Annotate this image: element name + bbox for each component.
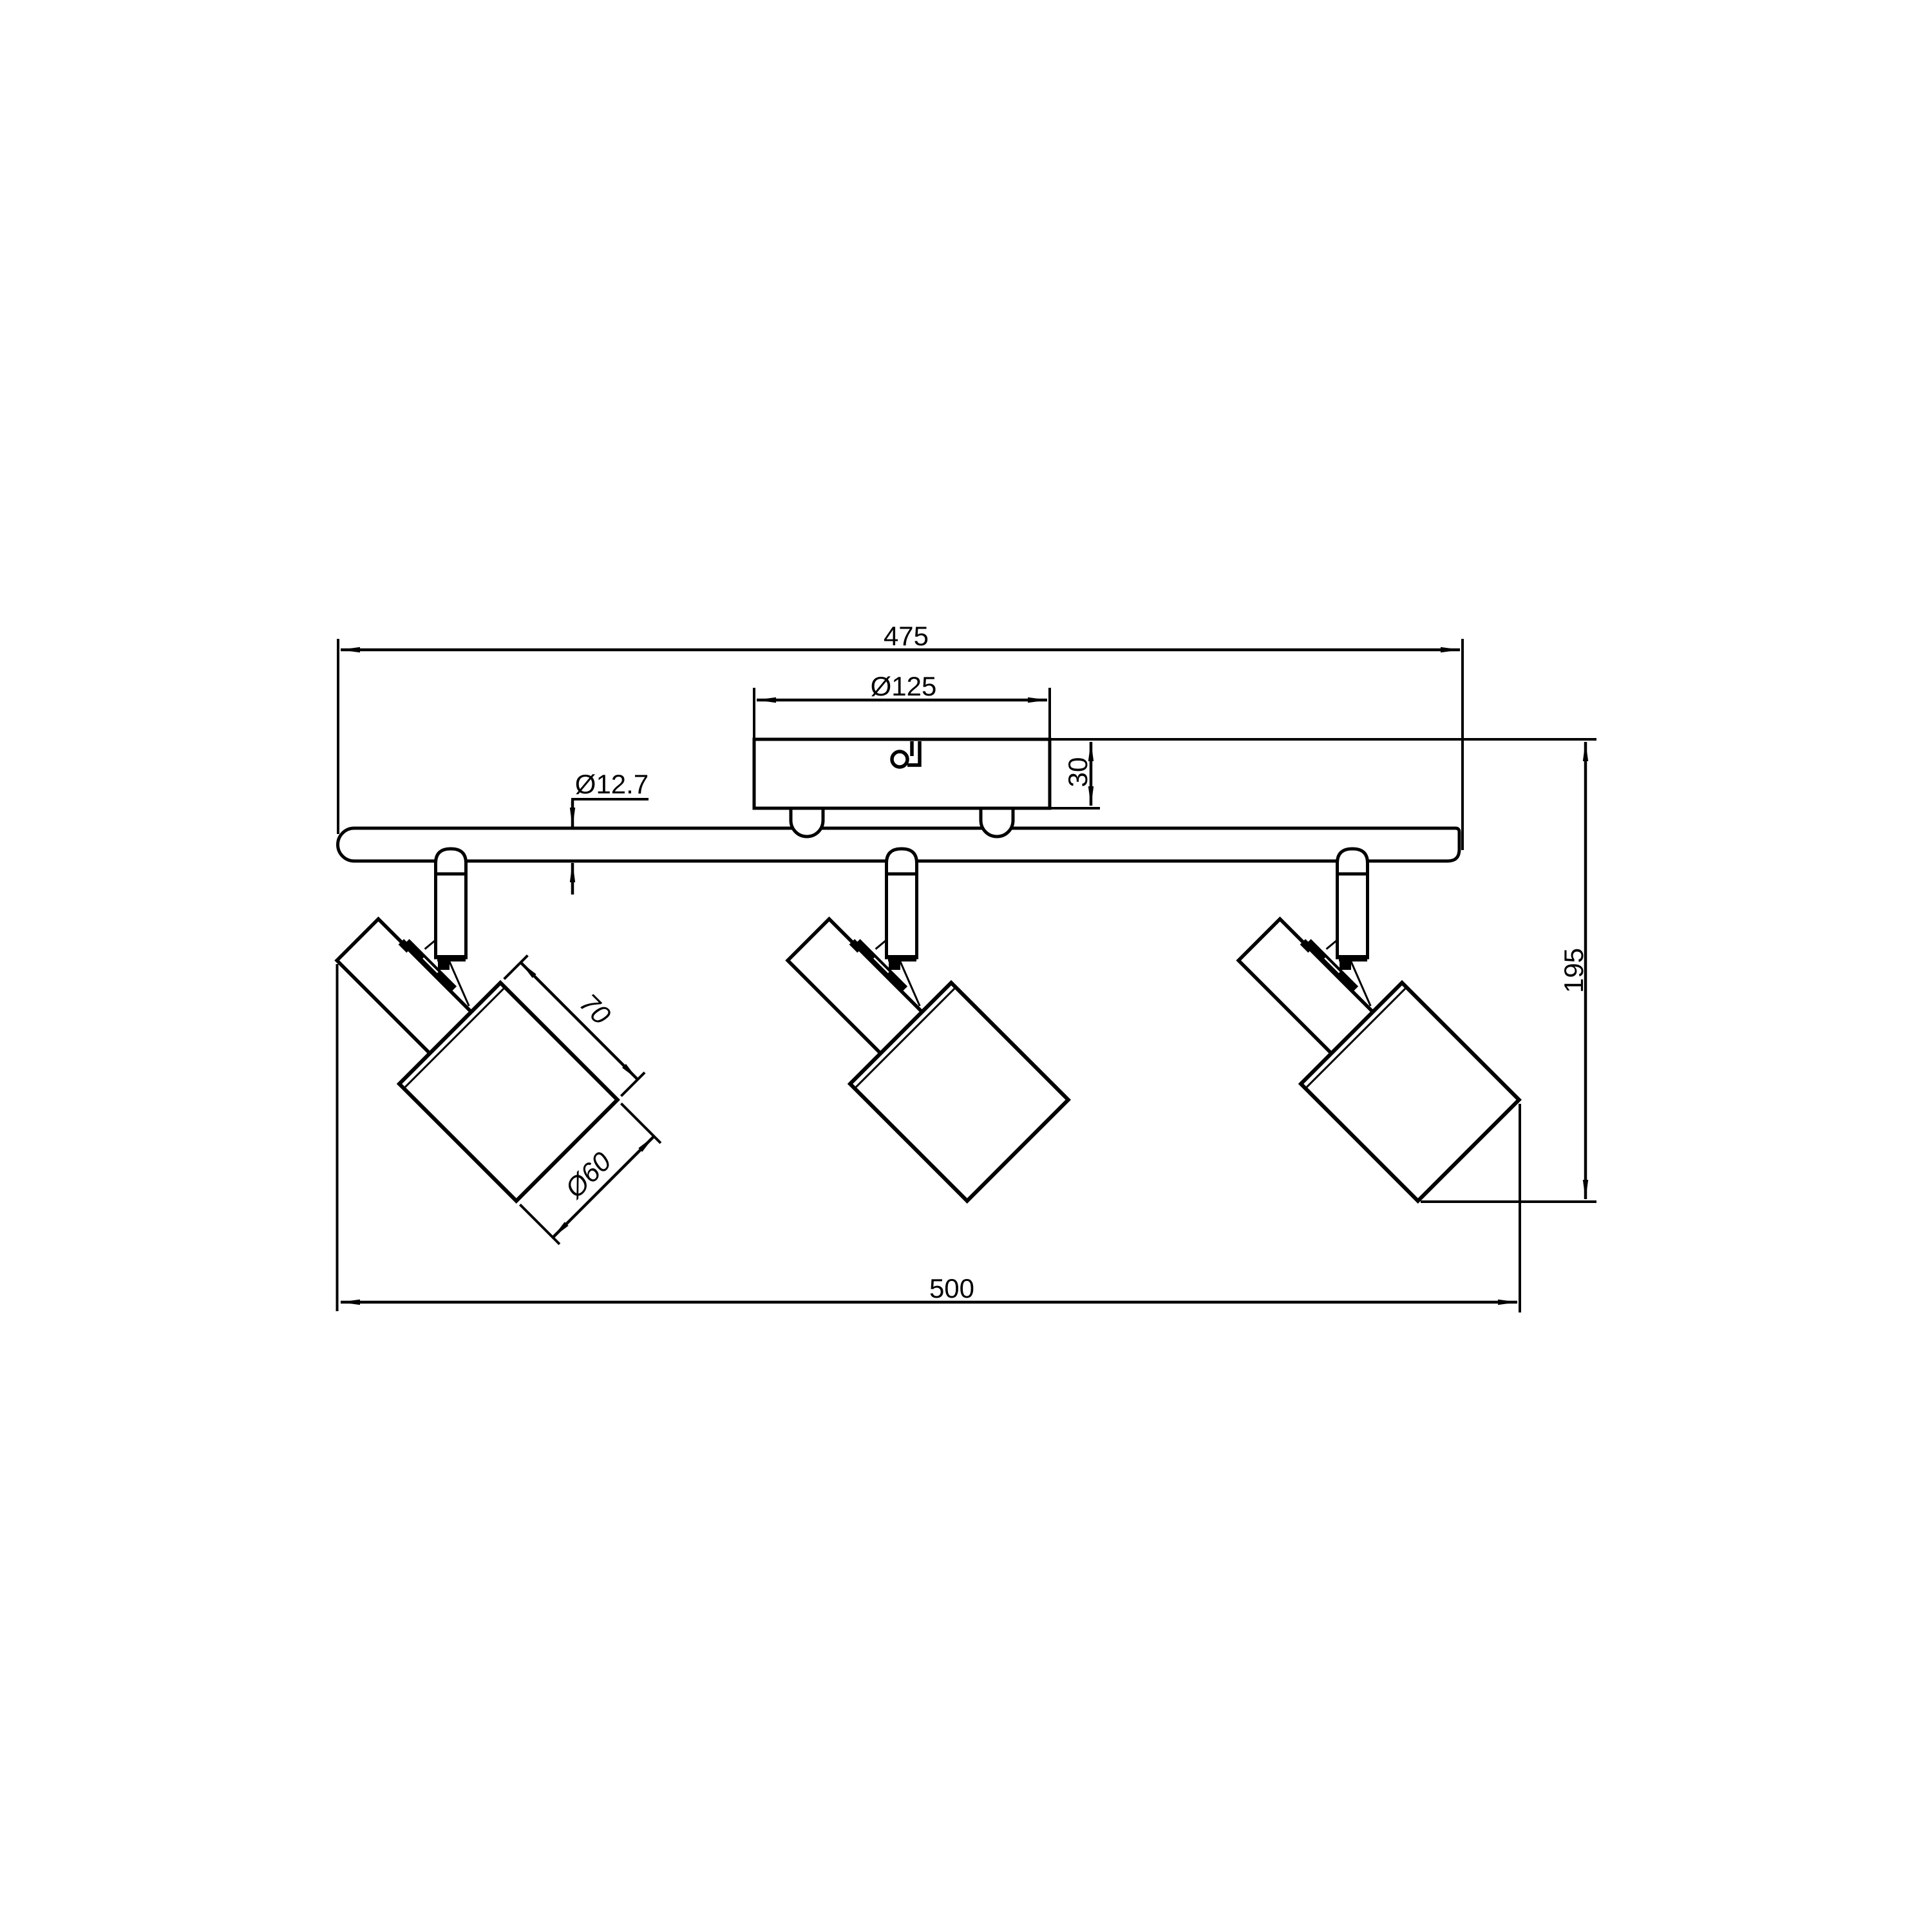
svg-text:Ø125: Ø125	[871, 671, 937, 701]
svg-text:30: 30	[1063, 757, 1093, 788]
svg-text:Ø12.7: Ø12.7	[575, 769, 649, 799]
svg-text:195: 195	[1558, 948, 1589, 993]
svg-text:475: 475	[884, 621, 929, 651]
svg-text:500: 500	[929, 1273, 974, 1303]
